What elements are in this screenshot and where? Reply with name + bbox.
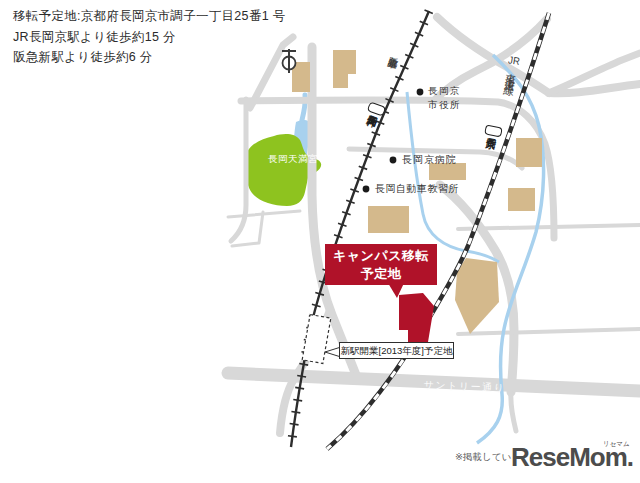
building-driving-school xyxy=(368,206,409,233)
header-line-1: 移転予定地:京都府長岡京市調子一丁目25番1 号 xyxy=(13,6,286,27)
driving-school-label: 長岡自動車教習所 xyxy=(375,182,459,196)
building-east-upper xyxy=(516,138,542,167)
driving-school-dot xyxy=(363,186,370,193)
hospital-label: 長岡京病院 xyxy=(402,153,457,167)
building-north-notched xyxy=(333,50,356,88)
header-line-2: JR長岡京駅より徒歩約15 分 xyxy=(13,27,286,48)
campus-callout: キャンパス移転 予定地 xyxy=(325,244,437,285)
building-large-trapezoid xyxy=(455,258,499,334)
road-east-below xyxy=(511,392,516,431)
campus-site-shape xyxy=(399,293,434,342)
resemom-logo: リセマム ReseMom. xyxy=(511,442,633,473)
road-network xyxy=(228,17,640,433)
park-label: 長岡天満宮 xyxy=(268,153,318,166)
city-hall-label: 長岡京 市役所 xyxy=(428,84,461,111)
map-canvas: 移転予定地:京都府長岡京市調子一丁目25番1 号 JR長岡京駅より徒歩約15 分… xyxy=(0,0,640,483)
building-east-lower xyxy=(508,188,535,211)
hospital-dot xyxy=(390,157,397,164)
jr-line-label-rest: 東海道本線 xyxy=(505,65,519,82)
header-line-3: 阪急新駅より徒歩約6 分 xyxy=(13,47,286,68)
footer-note: ※掲載してい xyxy=(455,451,511,464)
new-station-dashed-rect xyxy=(302,315,331,364)
resemom-logo-ruby: リセマム xyxy=(603,440,630,449)
city-hall-dot xyxy=(417,89,424,96)
campus-callout-line2: 予定地 xyxy=(325,265,437,283)
city-hall-label-line1: 長岡京 xyxy=(428,84,461,98)
city-hall-label-line2: 市役所 xyxy=(428,98,461,112)
campus-callout-line1: キャンパス移転 xyxy=(325,247,437,265)
map-graphic xyxy=(0,0,640,483)
road-thin-southeast xyxy=(458,329,640,334)
road-park-west xyxy=(231,99,246,241)
new-station-label: 新駅開業[2013年度]予定地 xyxy=(339,342,454,359)
header-address: 移転予定地:京都府長岡京市調子一丁目25番1 号 JR長岡京駅より徒歩約15 分… xyxy=(13,6,286,68)
